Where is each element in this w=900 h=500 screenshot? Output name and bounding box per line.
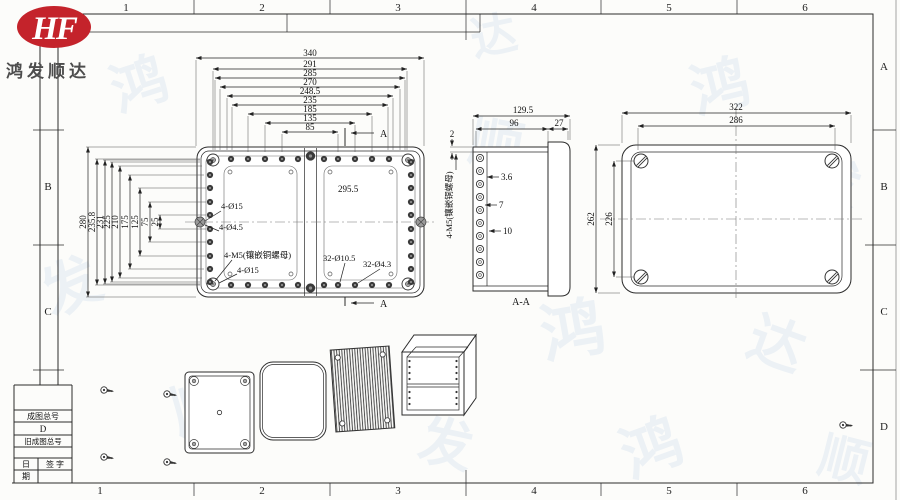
exploded-gasket: [260, 362, 326, 440]
title-date-bottom: 期: [22, 472, 30, 481]
zone-letter: C: [44, 306, 51, 318]
company-logo: HF 鸿发顺达: [6, 6, 91, 81]
zone-letter: C: [880, 306, 887, 318]
dim-85: 85: [306, 122, 316, 132]
dim-96: 96: [510, 118, 520, 128]
dim-129-5: 129.5: [513, 105, 534, 115]
dim-10: 10: [503, 226, 513, 236]
zone-number: 5: [666, 2, 672, 14]
zone-letter: D: [880, 421, 888, 433]
title-drawing-no-label: 成图总号: [27, 411, 59, 421]
exploded-mounting-plate: [330, 346, 395, 432]
dim-125: 125: [130, 215, 140, 229]
center-screw-icon: [306, 283, 315, 292]
dim-7: 7: [499, 200, 504, 210]
front-view: 340 291 285 270 248.5 235 185 135 85: [78, 48, 436, 310]
title-sign-label: 签 字: [46, 459, 64, 469]
zone-number: 1: [123, 2, 129, 14]
zone-number: 1: [97, 485, 103, 497]
dim-210: 210: [110, 215, 120, 229]
zone-number: 6: [802, 2, 808, 14]
section-letter-top: A: [380, 129, 388, 140]
zone-number: 2: [259, 485, 265, 497]
center-screw-icon: [306, 151, 315, 160]
dim-322: 322: [729, 102, 743, 112]
front-top-dimensions: 340 291 285 270 248.5 235 185 135 85: [196, 48, 424, 152]
label-inner-width: 295.5: [338, 184, 359, 194]
label-corner-holes2: 4-Ø15: [237, 265, 259, 275]
company-name: 鸿发顺达: [6, 61, 90, 81]
dim-3-6: 3.6: [501, 172, 513, 182]
dim-25: 25: [150, 217, 160, 227]
zone-number: 4: [531, 2, 537, 14]
label-lid-holes: 32-Ø10.5: [323, 253, 355, 263]
left-zone-letters: B C: [44, 181, 51, 318]
bottom-zone-numbers: 1 2 3 4 5 6: [97, 485, 808, 497]
dim-27: 27: [555, 118, 565, 128]
label-screw-holes: 32-Ø4.3: [363, 259, 391, 269]
zone-number: 3: [395, 485, 401, 497]
dim-75: 75: [140, 217, 150, 227]
exploded-view: [100, 335, 853, 467]
zone-number: 5: [666, 485, 672, 497]
lid-view: 322 286 262 226: [586, 102, 862, 300]
zone-number: 3: [395, 2, 401, 14]
dim-226: 226: [604, 212, 614, 226]
zone-number: 6: [802, 485, 808, 497]
title-date-top: 日: [22, 460, 30, 469]
dim-340: 340: [303, 48, 317, 58]
label-pilot-holes: 4-Ø4.5: [219, 222, 243, 232]
title-block: 成图总号 D 旧成图总号 日 期 签 字: [14, 385, 72, 483]
label-corner-holes: 4-Ø15: [221, 201, 243, 211]
hf-logo-monogram: HF: [31, 11, 78, 47]
right-zone-letters: A B C D: [880, 61, 888, 433]
drawing-sheet: 鸿 达 发 顺 鸿 发 鸿 达 顺 发 鸿 顺 达: [0, 0, 900, 500]
zone-letter: B: [880, 181, 887, 193]
dim-262: 262: [586, 212, 596, 226]
zone-letter: B: [44, 181, 51, 193]
section-view: 129.5 96 27 2 3.6 7 10 4-M5(镶嵌铜螺母) A-A: [444, 105, 570, 308]
zone-number: 2: [259, 2, 265, 14]
title-old-no-label: 旧成图总号: [24, 436, 62, 446]
label-brass-nuts: 4-M5(镶嵌铜螺母): [224, 250, 291, 260]
section-body-profile: [473, 147, 548, 291]
label-side-nuts: 4-M5(镶嵌铜螺母): [444, 171, 454, 238]
title-drawing-no-value: D: [40, 424, 47, 434]
drawing-canvas: 1 2 3 4 5 6 1 2 3 4 5 6 A B C D: [0, 0, 900, 500]
section-caption: A-A: [512, 297, 531, 308]
dim-286: 286: [729, 115, 743, 125]
exploded-box-body: [402, 335, 476, 415]
zone-number: 4: [531, 485, 537, 497]
zone-letter: A: [880, 61, 888, 73]
section-letter-bottom: A: [380, 299, 388, 310]
dim-175: 175: [120, 215, 130, 229]
dim-wall-2: 2: [450, 129, 455, 139]
section-lid-profile: [548, 142, 570, 296]
exploded-lid: [185, 372, 254, 453]
